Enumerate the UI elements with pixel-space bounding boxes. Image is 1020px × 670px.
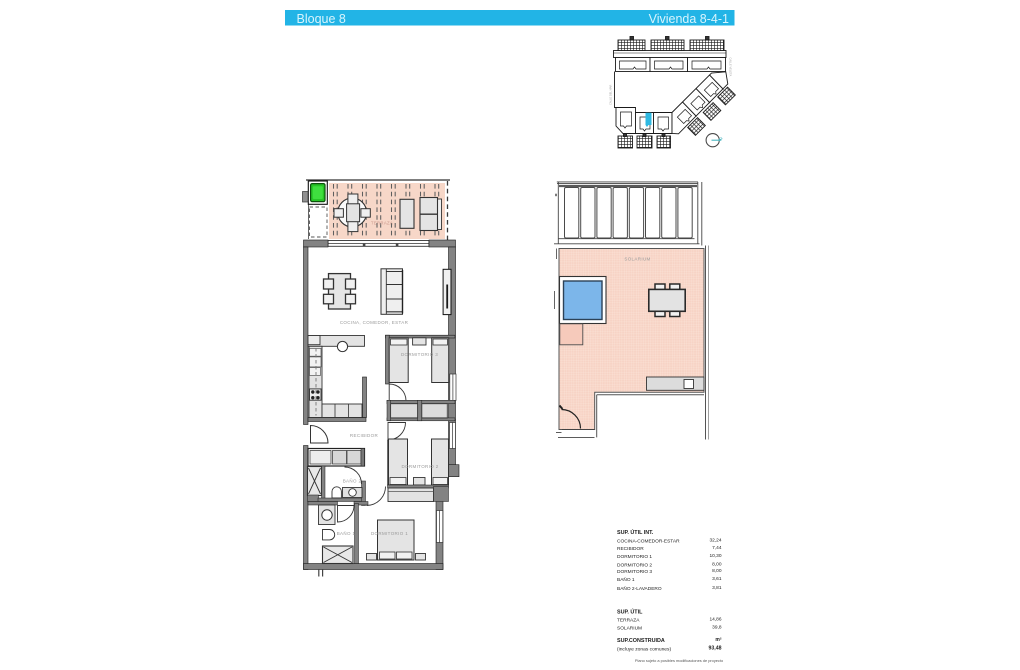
svg-text:32,24: 32,24 [709,537,721,543]
svg-text:BAÑO 2: BAÑO 2 [343,478,362,484]
svg-text:RECIBIDOR: RECIBIDOR [617,546,644,552]
svg-text:CALLE DEL MAR: CALLE DEL MAR [609,85,613,105]
svg-text:BAÑO 1: BAÑO 1 [337,530,356,536]
svg-text:93,48: 93,48 [709,646,722,652]
svg-text:SUP.CONSTRUIDA: SUP.CONSTRUIDA [617,638,665,644]
svg-text:COCINA-COMEDOR-ESTAR: COCINA-COMEDOR-ESTAR [617,538,680,544]
svg-text:DORMITORIO 3: DORMITORIO 3 [617,569,652,575]
svg-text:8,00: 8,00 [712,561,722,567]
svg-text:TERRAZA: TERRAZA [371,221,393,226]
svg-text:8,00: 8,00 [712,568,722,574]
svg-text:Vivienda 8-4-1: Vivienda 8-4-1 [649,12,729,26]
svg-text:(incluye zonas comunes): (incluye zonas comunes) [617,646,671,652]
svg-text:CALLE VELETA: CALLE VELETA [729,58,733,77]
svg-text:TERRAZA: TERRAZA [617,618,640,624]
svg-text:DORMITORIO 3: DORMITORIO 3 [401,352,438,357]
svg-text:3,61: 3,61 [712,576,722,582]
svg-text:DORMITORIO 2: DORMITORIO 2 [617,562,652,568]
svg-text:14,86: 14,86 [709,617,721,623]
svg-text:COCINA, COMEDOR, ESTAR: COCINA, COMEDOR, ESTAR [340,320,409,325]
svg-text:RECIBIDOR: RECIBIDOR [350,433,379,438]
svg-text:DORMITORIO 2: DORMITORIO 2 [401,464,438,469]
svg-text:BAÑO 2-LAVADERO: BAÑO 2-LAVADERO [617,585,662,592]
svg-text:3,81: 3,81 [712,585,722,591]
svg-text:SOLARIUM: SOLARIUM [617,625,642,631]
svg-text:7,44: 7,44 [712,545,722,551]
svg-text:DORMITORIO 1: DORMITORIO 1 [617,554,652,560]
svg-text:10,30: 10,30 [709,553,721,559]
svg-text:Bloque 8: Bloque 8 [297,12,346,26]
svg-text:DORMITORIO 1: DORMITORIO 1 [371,531,408,536]
svg-text:SUP. ÚTIL: SUP. ÚTIL [617,609,643,616]
svg-text:BAÑO 1: BAÑO 1 [617,576,635,583]
svg-text:Plano sujeto a posibles modifi: Plano sujeto a posibles modificaciones d… [635,658,723,663]
svg-text:39,8: 39,8 [712,624,722,630]
svg-text:SUP. ÚTIL INT.: SUP. ÚTIL INT. [617,529,654,536]
svg-text:SOLARIUM: SOLARIUM [624,257,650,262]
svg-text:m²: m² [715,637,721,643]
